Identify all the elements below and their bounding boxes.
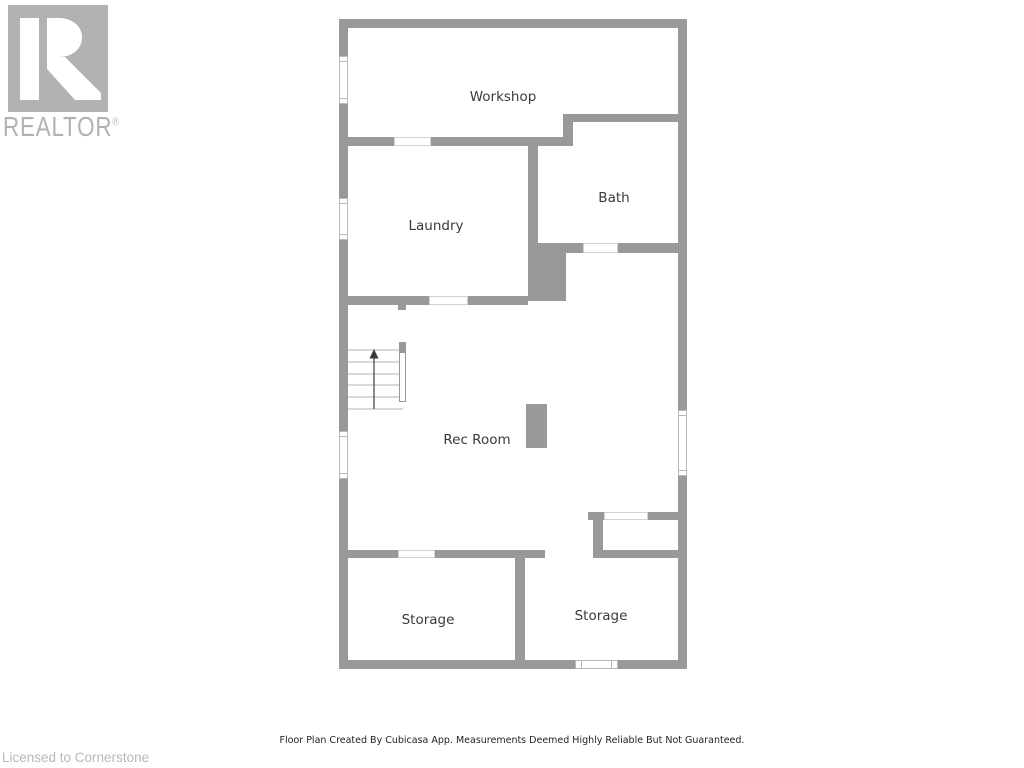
room-label-laundry: Laundry (408, 218, 463, 234)
wall-exterior-top (339, 19, 687, 28)
room-label-workshop: Workshop (470, 89, 537, 105)
wall-storage-top-middle (435, 550, 545, 558)
door-opening-nook (604, 512, 648, 520)
door-opening-laundry (429, 296, 468, 305)
door-opening-workshop (394, 137, 431, 146)
wall-laundry-bath-divider (528, 137, 538, 243)
door-opening-bath (583, 243, 618, 253)
wall-bath-bottom-left (528, 243, 583, 253)
room-label-rec-room: Rec Room (443, 432, 510, 448)
wall-nook-top-right (648, 512, 678, 520)
room-label-storage-left: Storage (402, 612, 455, 628)
wall-laundry-bottom-right (468, 296, 528, 305)
window-storage-bottom (575, 660, 618, 669)
window-workshop-left (339, 56, 348, 104)
wall-exterior-right (678, 19, 687, 669)
realtor-logo-icon (8, 5, 108, 112)
window-recroom-right (678, 410, 687, 476)
wall-bath-bottom-right (618, 243, 678, 253)
wall-bath-step-vertical (563, 114, 573, 146)
window-laundry-left (339, 198, 348, 240)
door-opening-storage-left (398, 550, 435, 558)
licensed-to-text: Licensed to Cornerstone (2, 750, 149, 765)
wall-workshop-bottom-left (348, 137, 394, 146)
room-label-bath: Bath (598, 190, 629, 206)
wall-workshop-bottom-right (431, 137, 563, 146)
floor-plan-page: REALTOR® (0, 0, 1024, 768)
wall-bath-top (573, 114, 678, 122)
realtor-wordmark-text: REALTOR (3, 111, 112, 142)
wall-storage-top-right (593, 550, 678, 558)
passage-storage-right (545, 550, 593, 558)
realtor-wordmark: REALTOR® (3, 111, 120, 143)
room-label-storage-right: Storage (575, 608, 628, 624)
window-recroom-left (339, 431, 348, 479)
rec-room-column (526, 404, 547, 448)
floor-plan-disclaimer: Floor Plan Created By Cubicasa App. Meas… (0, 735, 1024, 746)
wall-laundry-bottom-left (348, 296, 429, 305)
wall-exterior-bottom (339, 660, 687, 669)
wall-storage-top-left (348, 550, 398, 558)
wall-storage-divider (515, 550, 525, 660)
wall-stair-stub (398, 305, 406, 310)
registered-trademark-icon: ® (112, 117, 119, 129)
stairs-up-icon (346, 334, 408, 414)
